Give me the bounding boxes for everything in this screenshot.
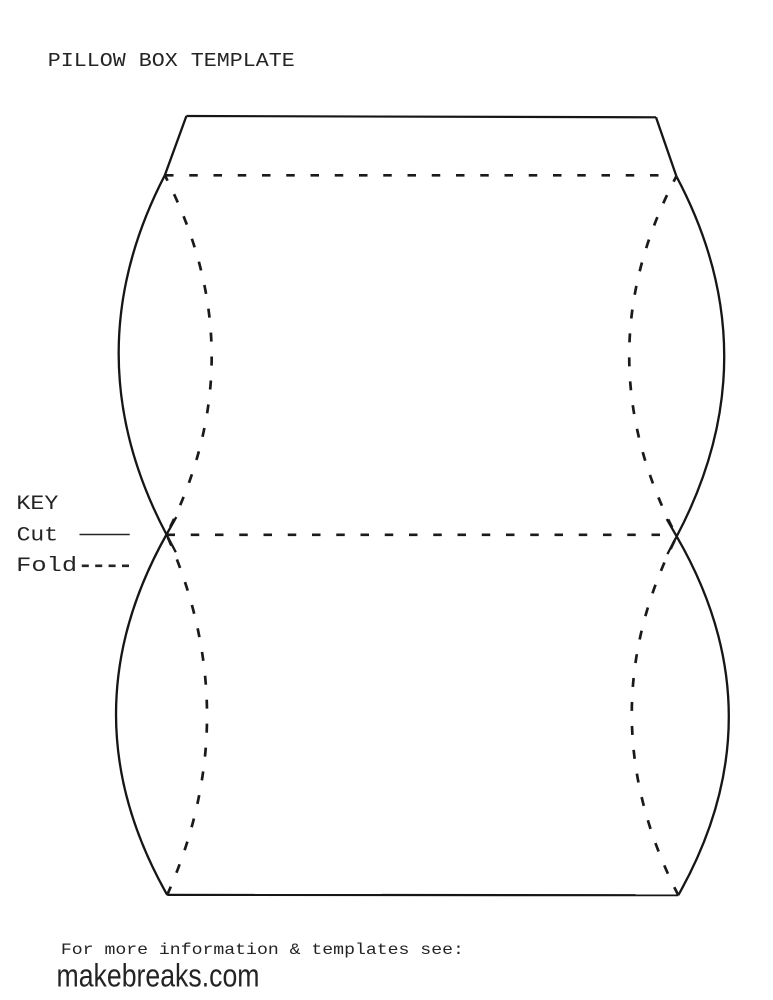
svg-text:Fold: Fold <box>16 555 77 578</box>
svg-text:PILLOW BOX TEMPLATE: PILLOW BOX TEMPLATE <box>48 50 295 72</box>
svg-text:makebreaks.com: makebreaks.com <box>57 958 260 994</box>
svg-text:Cut: Cut <box>17 525 59 548</box>
svg-text:For more information & templat: For more information & templates see: <box>61 941 464 959</box>
svg-text:KEY: KEY <box>16 493 58 516</box>
